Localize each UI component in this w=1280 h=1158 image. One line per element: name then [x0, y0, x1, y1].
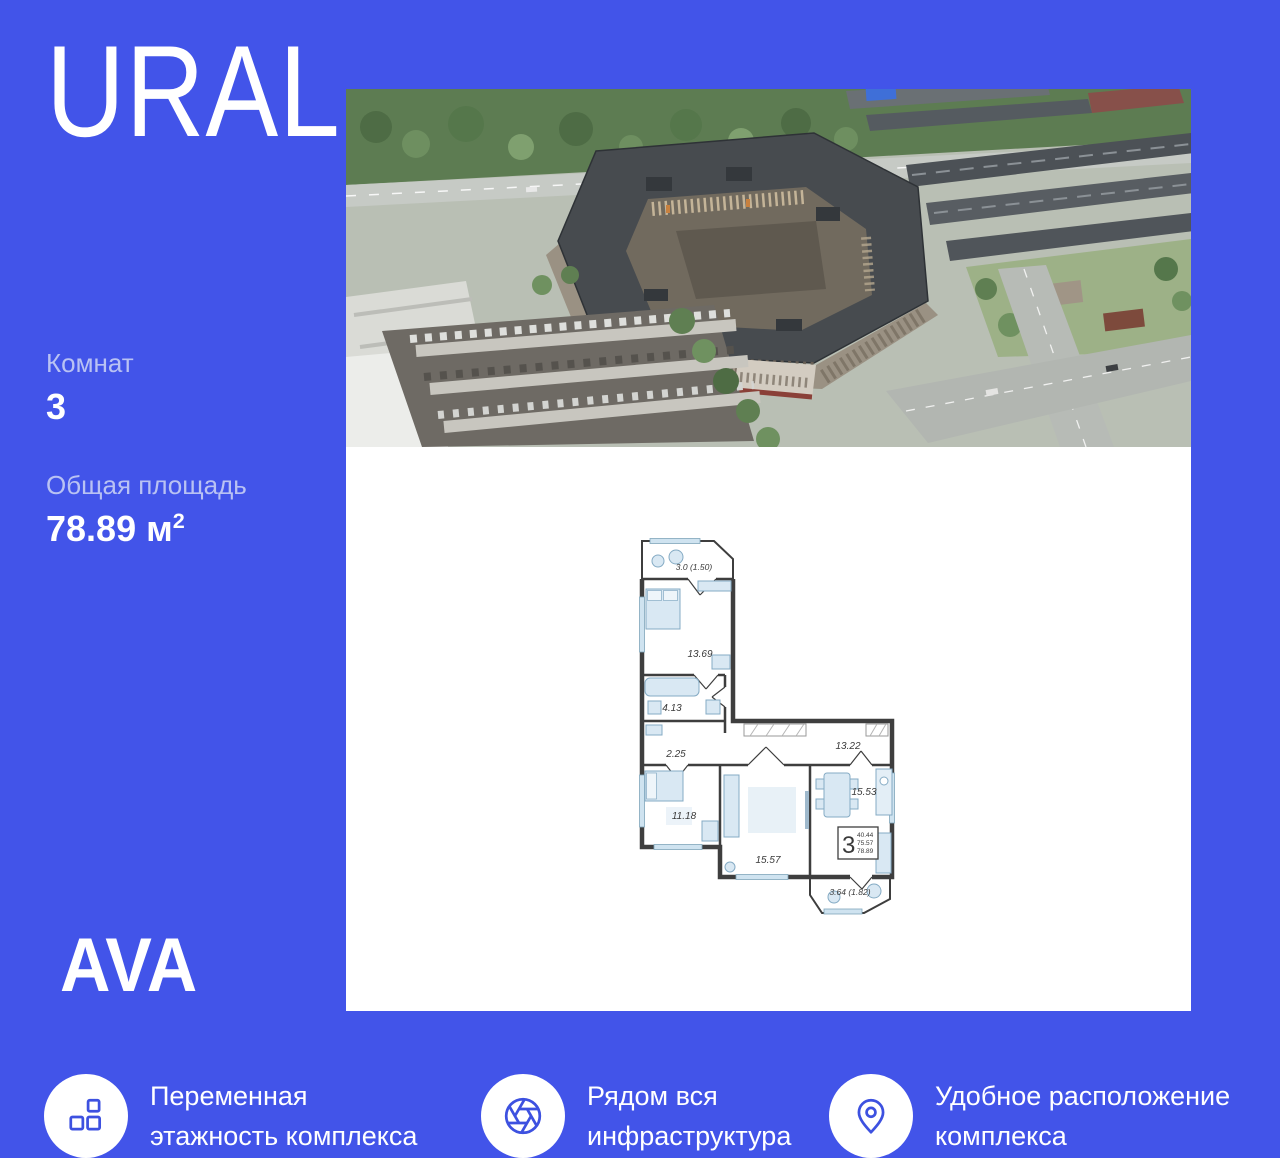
- room-area-bedroom2: 11.18: [672, 811, 697, 822]
- room-area-balcony-top: 3.0 (1.50): [676, 562, 713, 572]
- feature-label-line1: Переменная: [150, 1076, 417, 1116]
- developer-logo: AVA: [60, 928, 197, 1004]
- feature-label: Удобное расположение комплекса: [935, 1076, 1230, 1156]
- stamp-rooms: 3: [842, 832, 855, 859]
- stamp-total-area: 78.89: [857, 848, 874, 855]
- rooms-stat: Комнат 3: [46, 348, 134, 428]
- room-area-hall: 2.25: [665, 749, 686, 760]
- location-pin-icon: [850, 1095, 892, 1137]
- stamp-living-area: 40.44: [857, 832, 874, 839]
- room-area-bathroom: 4.13: [662, 703, 682, 714]
- rooms-value: 3: [46, 386, 134, 428]
- rooms-label: Комнат: [46, 348, 134, 379]
- floor-plan: 3 40.44 75.57 78.89 3.0 (1.50) 13.69 4.1…: [636, 537, 898, 919]
- aperture-icon: [502, 1095, 544, 1137]
- feature-label-line2: комплекса: [935, 1116, 1230, 1156]
- room-area-living: 15.57: [755, 855, 780, 866]
- area-label: Общая площадь: [46, 470, 247, 501]
- feature-label: Рядом вся инфраструктура: [587, 1076, 791, 1156]
- feature-label-line1: Удобное расположение: [935, 1076, 1230, 1116]
- feature-label: Переменная этажность комплекса: [150, 1076, 417, 1156]
- stamp-area: 75.57: [857, 840, 874, 847]
- area-number: 78.89 м: [46, 508, 173, 549]
- area-value: 78.89 м2: [46, 508, 247, 550]
- room-area-bedroom1: 13.69: [687, 649, 712, 660]
- room-area-corridor: 13.22: [835, 741, 860, 752]
- area-superscript: 2: [173, 508, 185, 533]
- feature-infrastructure: Рядом вся инфраструктура: [481, 1074, 791, 1158]
- room-area-kitchen: 15.53: [851, 787, 876, 798]
- promo-card: { "theme": { "background": "#4254E9", "p…: [0, 0, 1280, 1158]
- blocks-icon: [65, 1095, 107, 1137]
- media-panel: 3 40.44 75.57 78.89 3.0 (1.50) 13.69 4.1…: [346, 89, 1191, 1011]
- feature-circle: [829, 1074, 913, 1158]
- area-stat: Общая площадь 78.89 м2: [46, 470, 247, 550]
- feature-label-line1: Рядом вся: [587, 1076, 791, 1116]
- room-area-balcony-bottom: 3.64 (1.82): [829, 887, 870, 897]
- feature-circle: [44, 1074, 128, 1158]
- feature-label-line2: этажность комплекса: [150, 1116, 417, 1156]
- feature-variable-floors: Переменная этажность комплекса: [44, 1074, 417, 1158]
- feature-circle: [481, 1074, 565, 1158]
- complex-aerial-photo: [346, 89, 1191, 447]
- feature-location: Удобное расположение комплекса: [829, 1074, 1230, 1158]
- feature-label-line2: инфраструктура: [587, 1116, 791, 1156]
- brand-logo: URAL: [46, 26, 341, 156]
